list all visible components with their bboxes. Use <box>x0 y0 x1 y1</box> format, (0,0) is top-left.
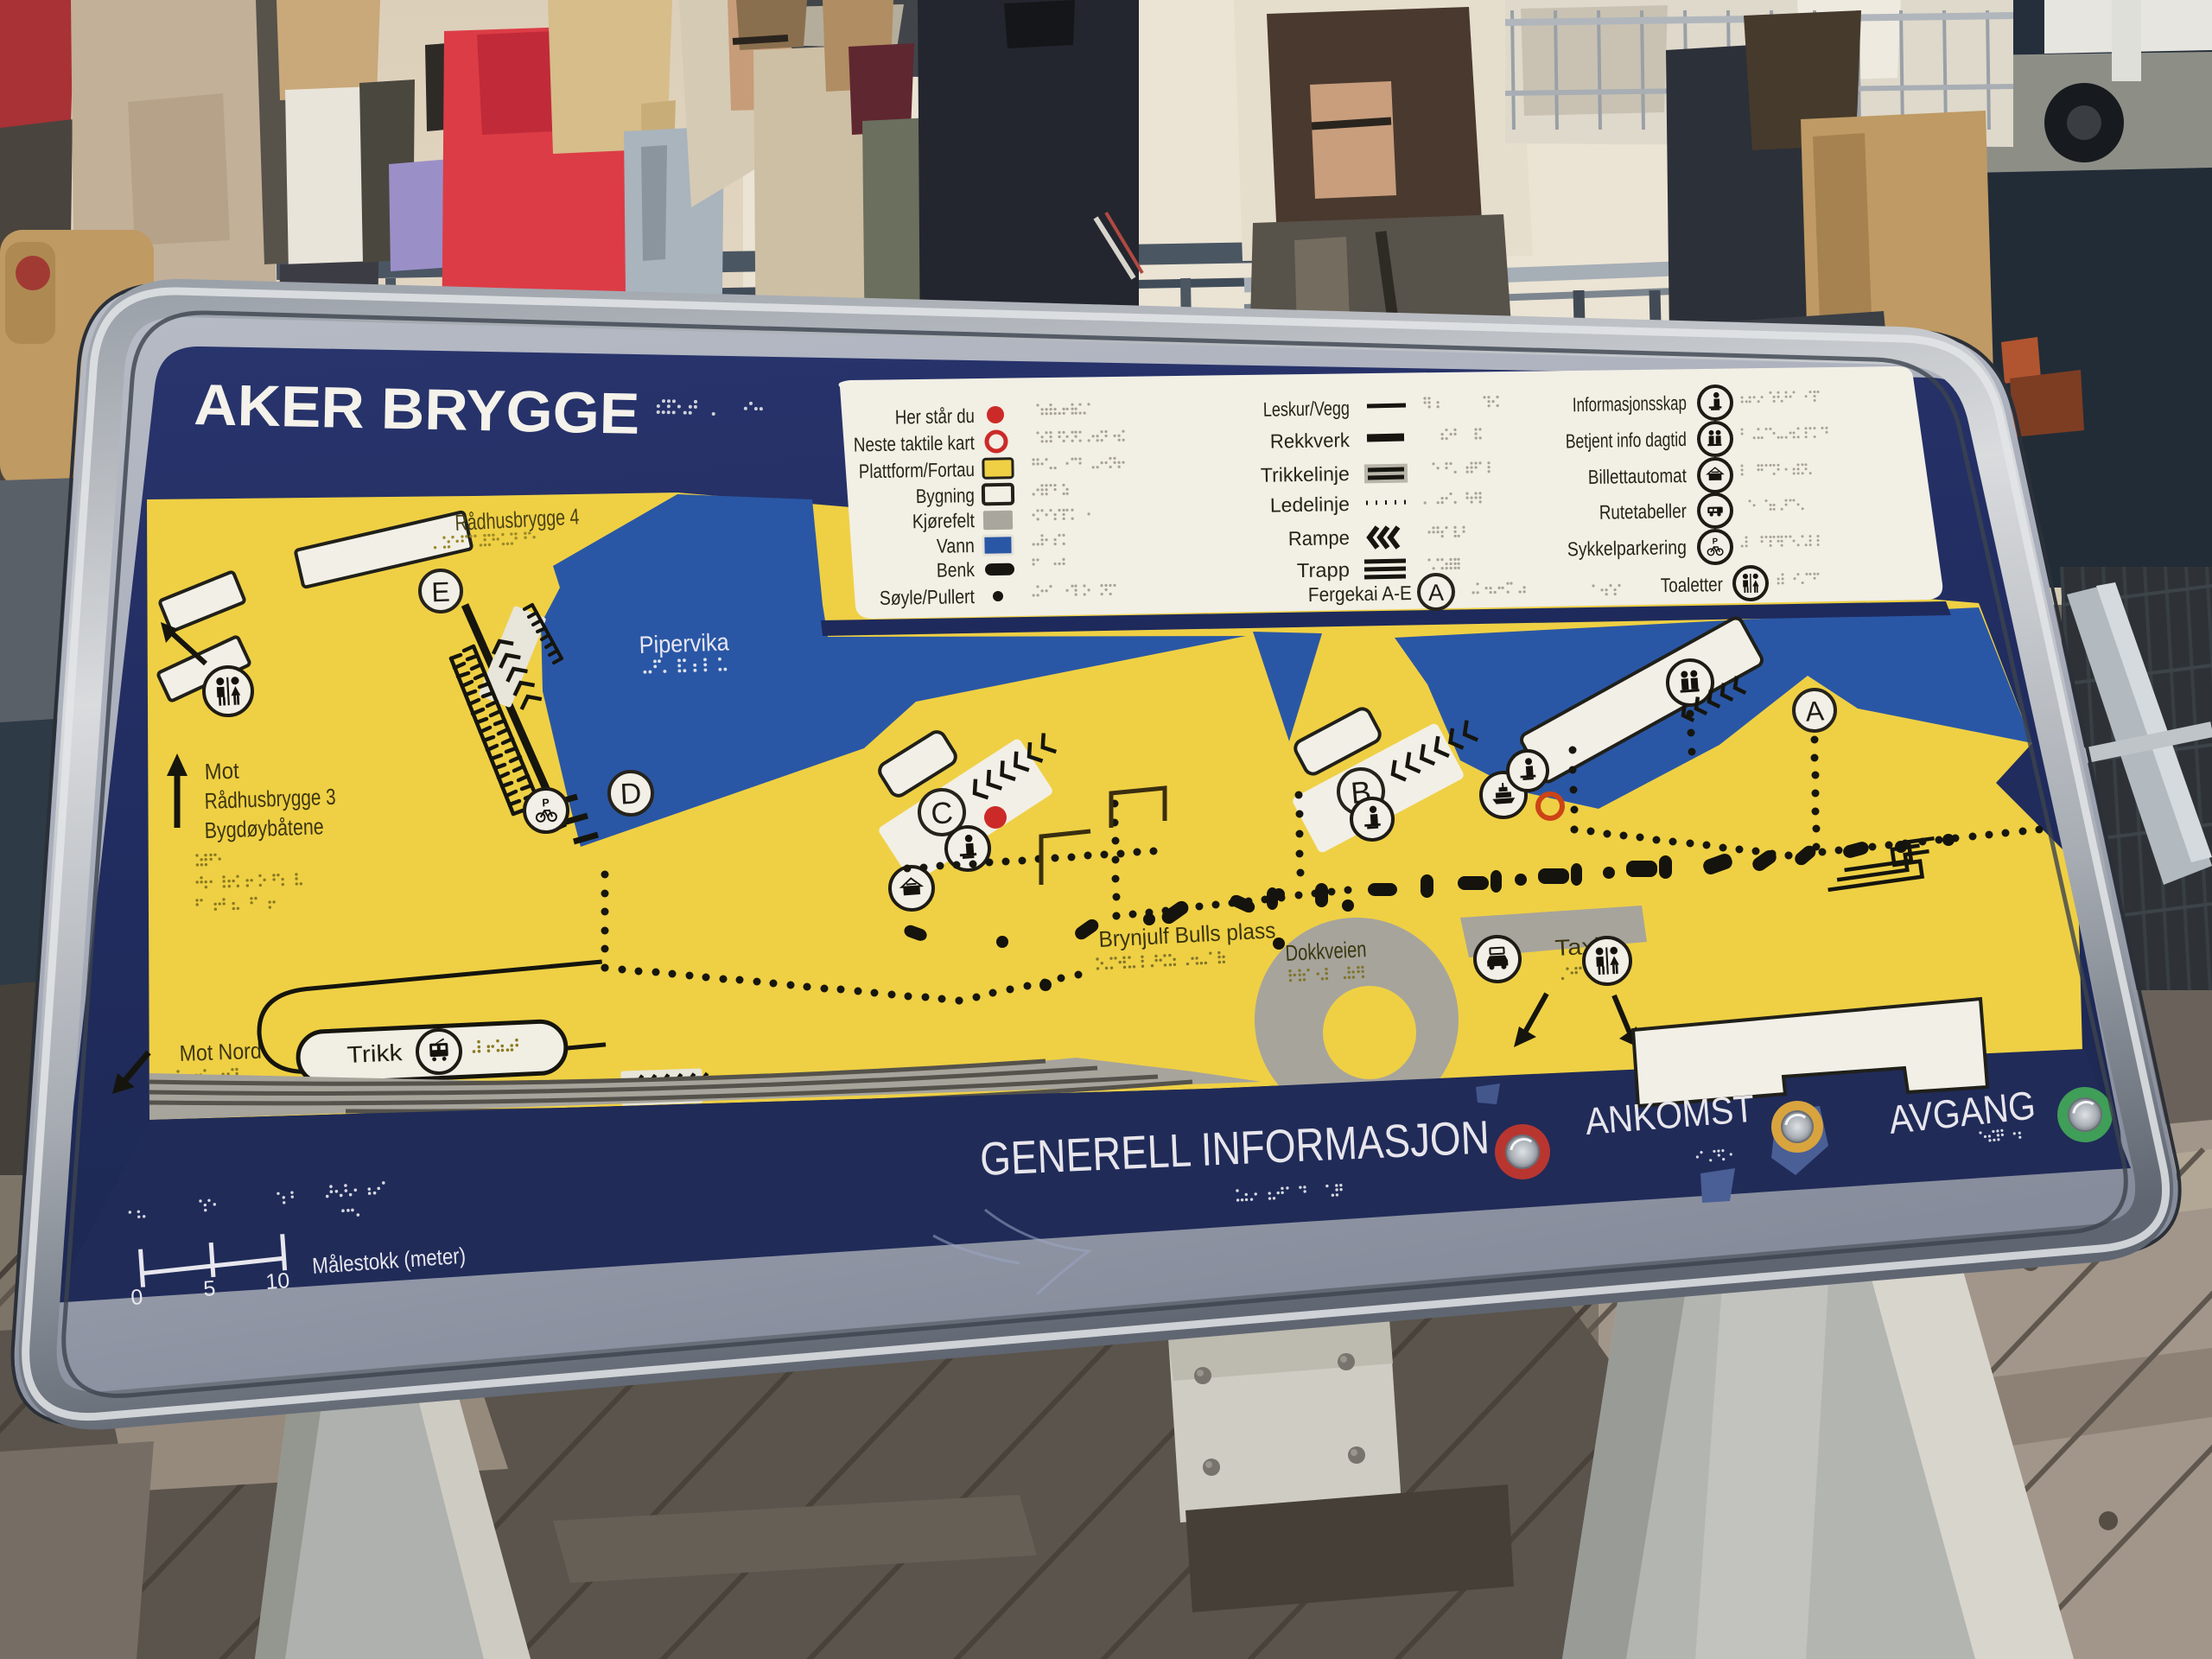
svg-text:Rampe: Rampe <box>1288 526 1350 550</box>
svg-text:P: P <box>542 797 550 809</box>
svg-text:Sykkelparkering: Sykkelparkering <box>1567 536 1687 560</box>
svg-text:Pipervika: Pipervika <box>639 628 729 658</box>
svg-text:E: E <box>431 576 451 608</box>
svg-text:Dokkveien: Dokkveien <box>1285 936 1367 966</box>
svg-text:Mot: Mot <box>204 758 240 785</box>
svg-text:Leskur/Vegg: Leskur/Vegg <box>1263 397 1350 421</box>
svg-text:Benk: Benk <box>937 558 976 582</box>
svg-text:A: A <box>1804 695 1825 727</box>
svg-text:A: A <box>1428 580 1445 606</box>
svg-text:Neste taktile kart: Neste taktile kart <box>854 431 976 455</box>
svg-text:Vann: Vann <box>937 534 975 557</box>
svg-text:P: P <box>1713 537 1719 546</box>
svg-text:Rekkverk: Rekkverk <box>1270 429 1351 453</box>
svg-text:Kjørefelt: Kjørefelt <box>912 509 976 532</box>
svg-text:10: 10 <box>264 1268 290 1294</box>
svg-text:D: D <box>620 777 643 810</box>
svg-text:Rådhusbrygge 3: Rådhusbrygge 3 <box>204 784 336 814</box>
svg-text:Trikkelinje: Trikkelinje <box>1261 462 1350 486</box>
svg-text:Plattform/Fortau: Plattform/Fortau <box>859 458 975 482</box>
svg-text:Toaletter: Toaletter <box>1661 573 1724 596</box>
svg-text:Søyle/Pullert: Søyle/Pullert <box>880 585 976 609</box>
svg-text:Bygdøybåtene: Bygdøybåtene <box>204 813 324 843</box>
svg-text:Rutetabeller: Rutetabeller <box>1599 499 1688 524</box>
svg-text:5: 5 <box>202 1276 216 1301</box>
svg-text:Trikk: Trikk <box>346 1039 404 1068</box>
svg-text:Billettautomat: Billettautomat <box>1588 464 1688 488</box>
svg-text:Mot Nord: Mot Nord <box>179 1038 262 1066</box>
svg-text:Trapp: Trapp <box>1297 558 1350 582</box>
svg-text:Ledelinje: Ledelinje <box>1270 493 1350 517</box>
svg-text:C: C <box>930 796 955 831</box>
svg-text:0: 0 <box>130 1285 143 1310</box>
svg-text:Fergekai A-E: Fergekai A-E <box>1308 582 1412 606</box>
svg-text:AKER BRYGGE: AKER BRYGGE <box>194 372 640 447</box>
svg-text:Betjent info dagtid: Betjent info dagtid <box>1566 428 1687 452</box>
svg-text:Informasjonsskap: Informasjonsskap <box>1573 391 1687 416</box>
svg-text:Bygning: Bygning <box>916 484 975 507</box>
svg-text:Her står du: Her står du <box>895 404 975 429</box>
